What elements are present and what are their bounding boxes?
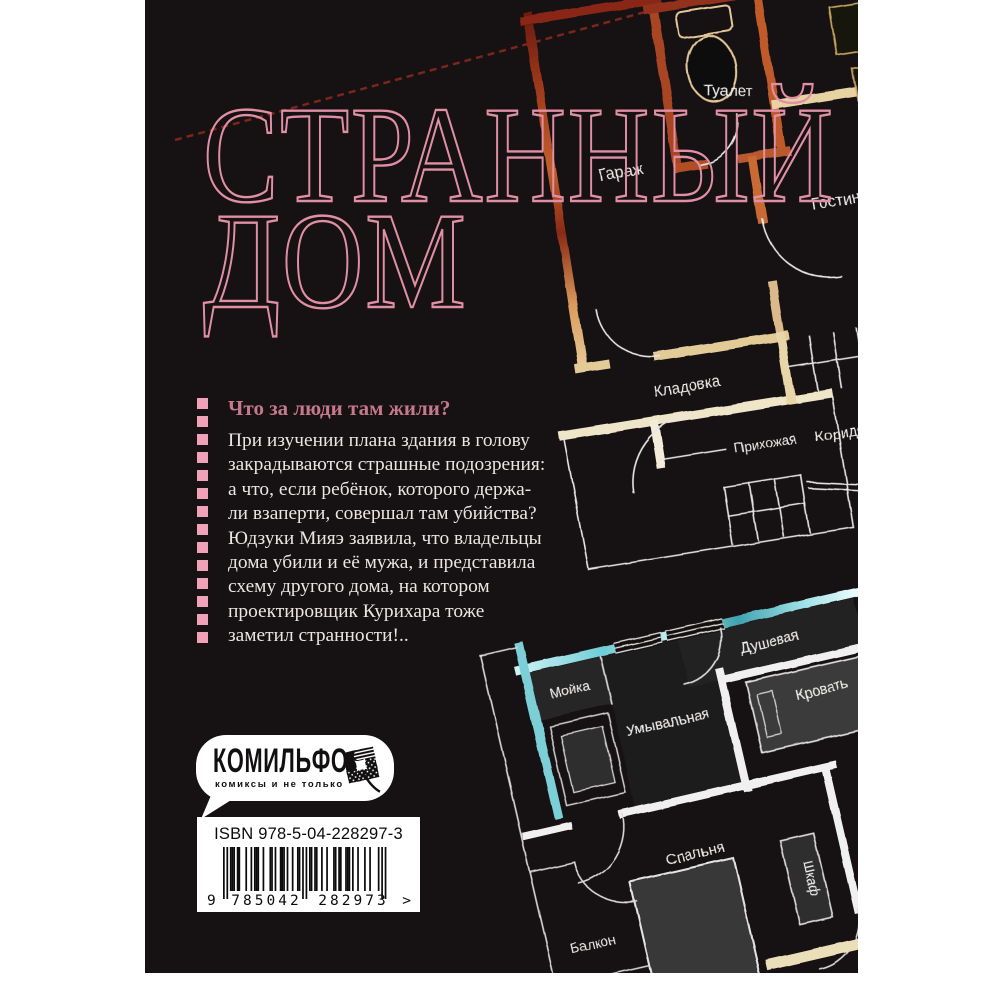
annotation-line: ли взаперти, совершал там убийства? [228, 502, 545, 526]
annotation-line: дома убили и её мужа, и представила [228, 551, 545, 575]
book-back-cover: Туалет Гараж Гостин Кладовка Прихожая Ко… [145, 0, 858, 973]
dashed-accent-line [197, 398, 208, 644]
room-label-corridor: Коридор [814, 420, 858, 446]
speech-bubble-tail [201, 793, 236, 819]
book-title: СТРАННЫЙ ДОМ [203, 102, 858, 314]
publisher-name: КОМИЛЬФО [213, 742, 349, 781]
isbn-block: ISBN 978-5-04-228297-3 9 785042 282973 > [197, 817, 420, 912]
book-title-line2: ДОМ [203, 208, 835, 314]
room-label-hall: Прихожая [733, 431, 797, 456]
barcode-digit-group: 282973 [310, 893, 397, 909]
publisher-logo: КОМИЛЬФО комиксы и не только [196, 735, 394, 801]
annotation-line: а что, если ребёнок, которого держа- [228, 478, 545, 502]
publisher-tagline: комиксы и не только [215, 779, 344, 790]
annotation-line: проектировщик Курихара тоже [228, 600, 545, 624]
annotation-line: закрадываются страшные подозрения: [228, 453, 545, 477]
room-label-balcony: Балкон [569, 932, 616, 957]
barcode-digits: 9 785042 282973 > [207, 893, 411, 909]
annotation-line: заметил странности!.. [228, 624, 545, 648]
annotation-line: схему другого дома, на котором [228, 575, 545, 599]
room-label-storage: Кладовка [652, 373, 723, 401]
annotation-heading: Что за люди там жили? [228, 396, 450, 421]
annotation-text: При изучении плана здания в голову закра… [228, 429, 545, 649]
barcode-digit-group: 785042 [223, 893, 310, 909]
annotation-line: Юдзуки Мияэ заявила, что владельцы [228, 527, 545, 551]
barcode-digit-first: 9 [207, 893, 223, 909]
annotation-line: При изучении плана здания в голову [228, 429, 545, 453]
product-photo: Туалет Гараж Гостин Кладовка Прихожая Ко… [0, 0, 1000, 1000]
barcode-arrow: > [397, 893, 411, 909]
